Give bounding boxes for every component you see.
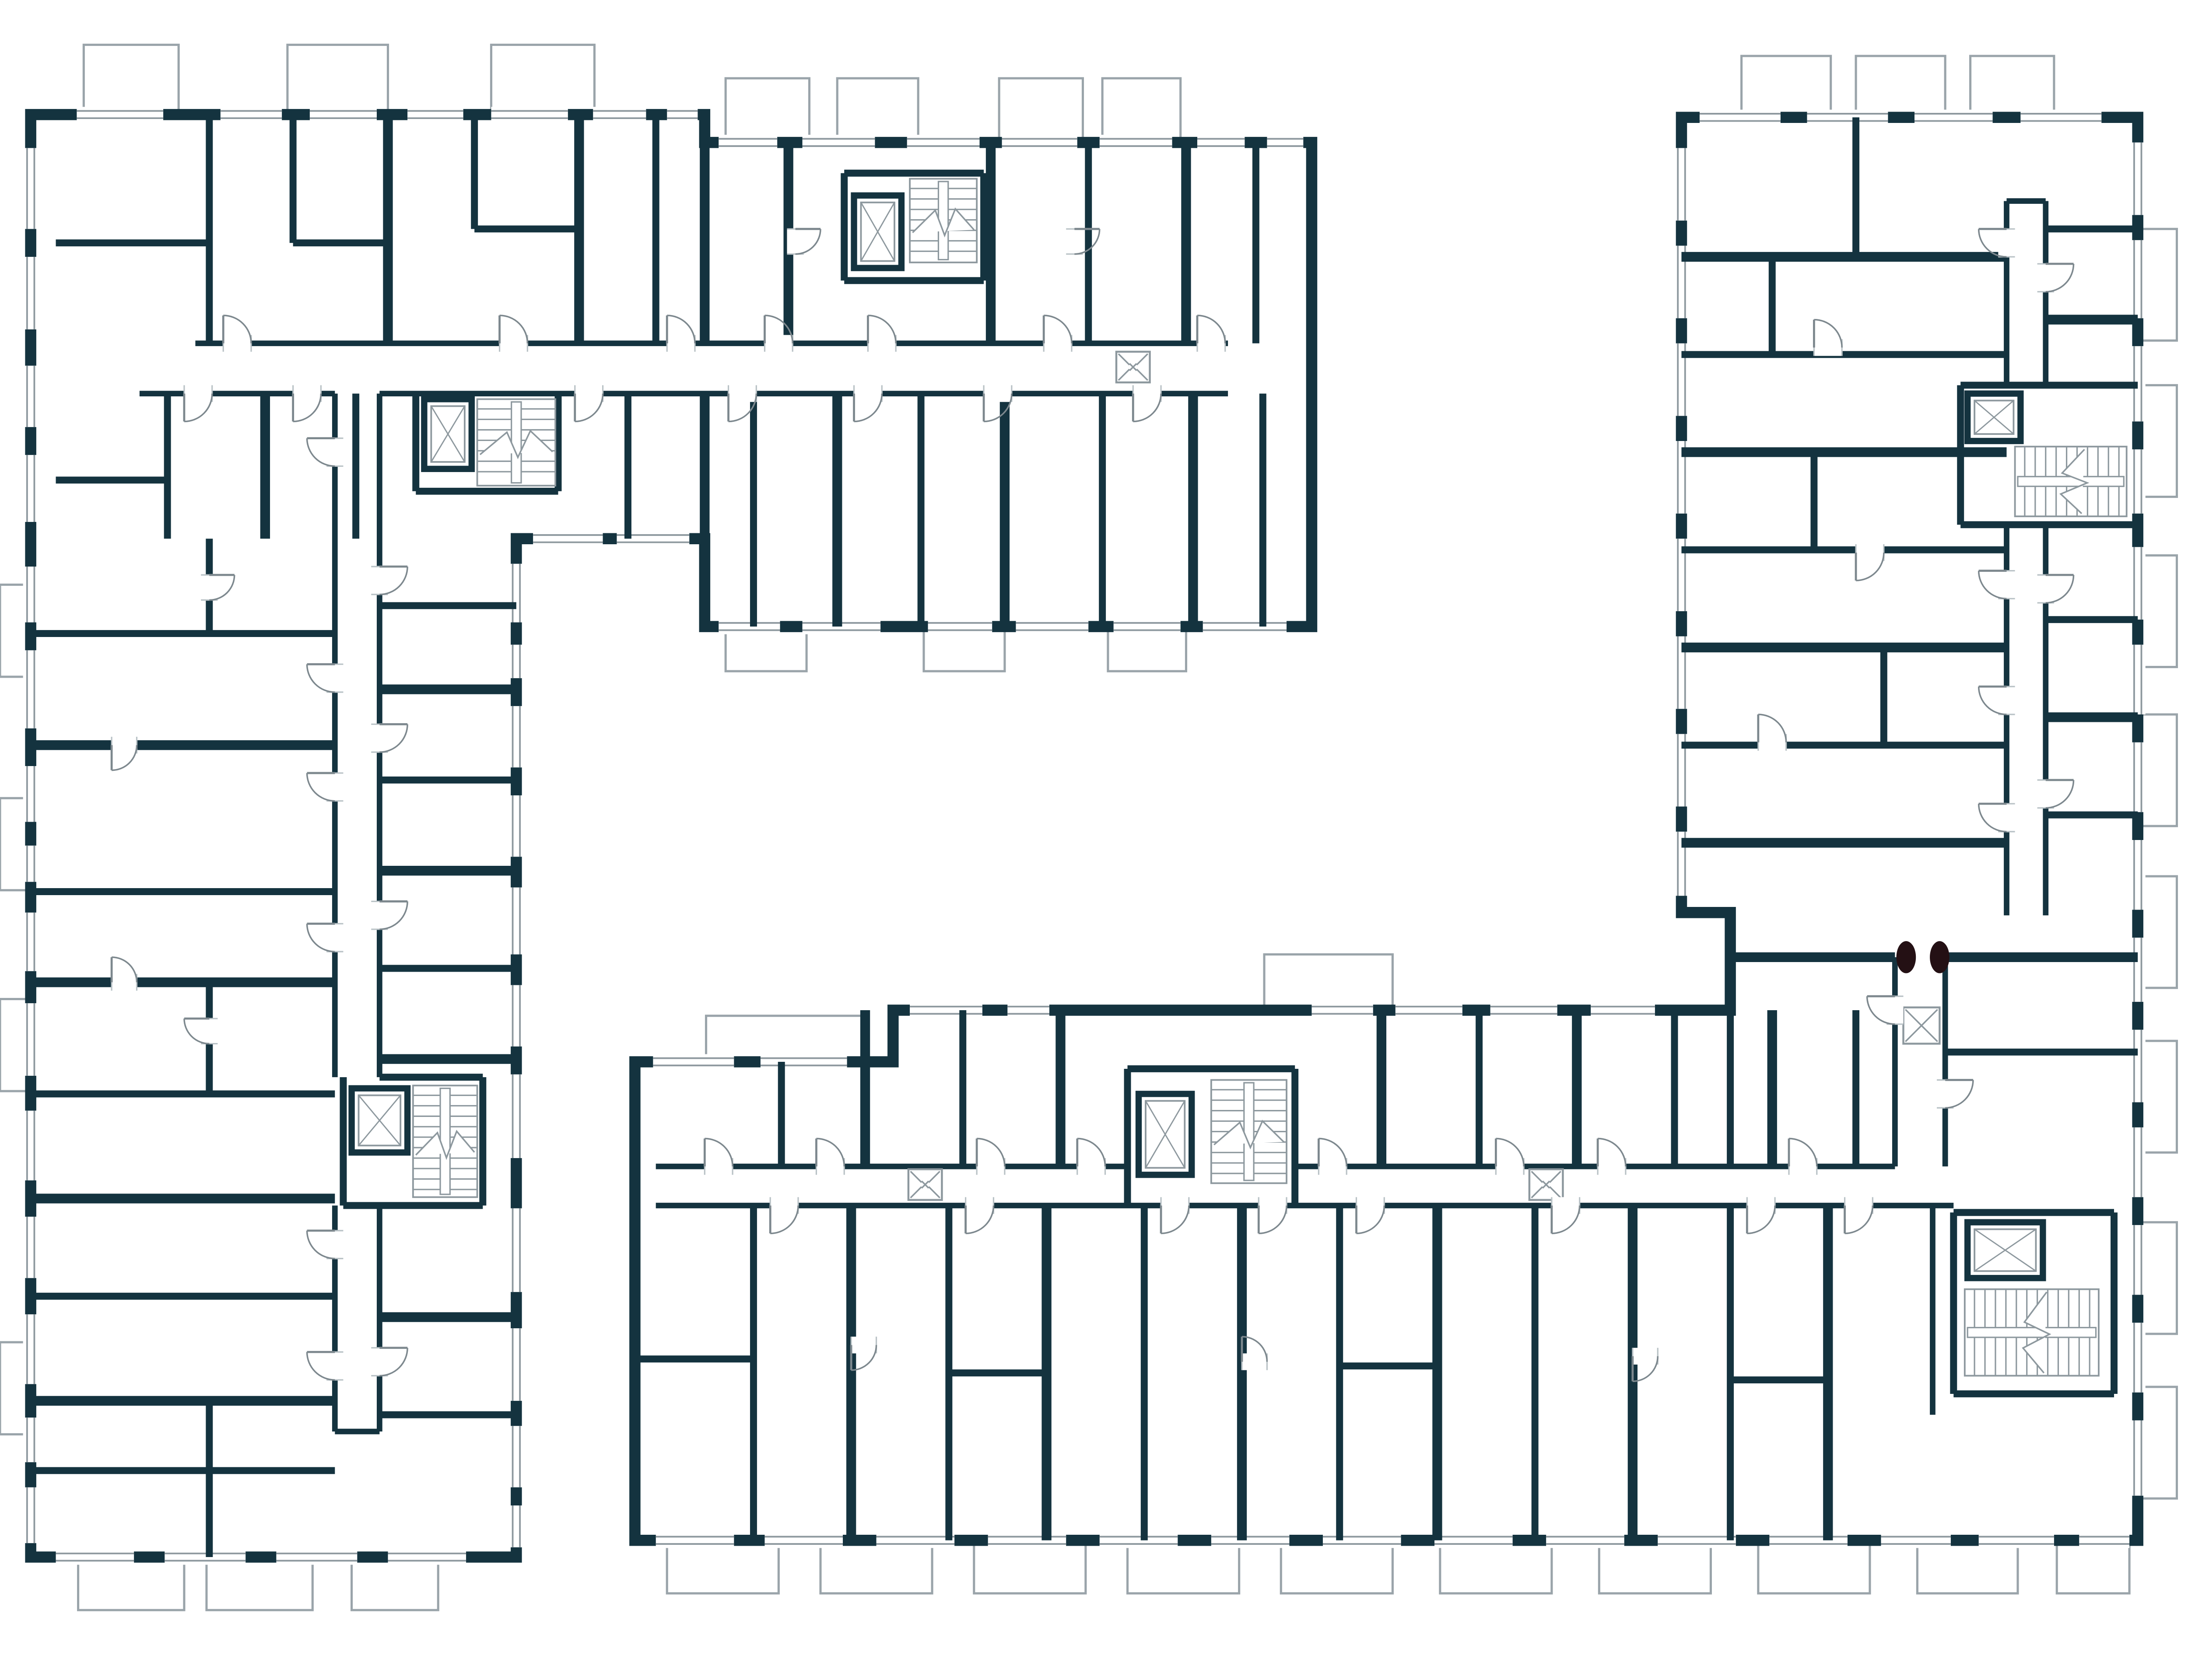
window xyxy=(1323,1533,1401,1548)
window xyxy=(2130,1323,2146,1392)
window xyxy=(1700,110,1781,125)
window xyxy=(23,1487,39,1543)
window xyxy=(2130,449,2146,514)
balcony xyxy=(352,1557,438,1610)
window xyxy=(2130,547,2146,619)
window xyxy=(23,1417,39,1462)
window xyxy=(508,564,524,623)
window xyxy=(988,1533,1066,1548)
window xyxy=(1267,135,1303,150)
window xyxy=(23,650,39,728)
window xyxy=(764,1533,843,1548)
shaft-hatch-marker xyxy=(1529,1169,1563,1200)
balcony xyxy=(2057,1540,2129,1593)
balcony xyxy=(1742,56,1831,117)
balcony xyxy=(974,1540,1086,1593)
elevator xyxy=(424,399,471,469)
window xyxy=(276,1549,357,1564)
balcony xyxy=(820,1540,932,1593)
window xyxy=(1914,110,1993,125)
balcony xyxy=(84,45,179,114)
floor-plan xyxy=(0,0,2188,1680)
balcony xyxy=(1102,78,1181,143)
window xyxy=(1100,135,1172,150)
balcony xyxy=(837,78,918,143)
window xyxy=(23,1111,39,1180)
shaft-hatch-marker xyxy=(1903,1008,1939,1044)
window xyxy=(1658,1533,1736,1548)
window xyxy=(593,107,646,122)
floor-plan-canvas xyxy=(0,0,2188,1680)
window xyxy=(667,107,698,122)
window xyxy=(2130,143,2146,215)
window xyxy=(23,455,39,522)
window xyxy=(23,913,39,971)
balcony xyxy=(1758,1540,1870,1593)
window xyxy=(1546,1533,1624,1548)
window xyxy=(2020,110,2101,125)
window xyxy=(2130,742,2146,812)
window xyxy=(23,846,39,882)
window xyxy=(56,1549,134,1564)
staircase xyxy=(910,179,977,262)
window xyxy=(2079,1533,2129,1548)
elevator xyxy=(1967,1222,2043,1278)
window xyxy=(1100,1533,1178,1548)
elevator xyxy=(352,1088,408,1153)
window xyxy=(508,795,524,857)
staircase xyxy=(2015,447,2127,516)
window xyxy=(2130,938,2146,1002)
window xyxy=(907,135,980,150)
window xyxy=(877,1533,955,1548)
balcony xyxy=(1917,1540,2018,1593)
window xyxy=(508,1328,524,1401)
window xyxy=(653,1054,734,1069)
window xyxy=(508,1426,524,1487)
window xyxy=(1211,1533,1290,1548)
window xyxy=(1591,1002,1655,1018)
window xyxy=(1490,1002,1557,1018)
window xyxy=(1114,619,1181,634)
window xyxy=(23,1217,39,1278)
window xyxy=(23,1003,39,1076)
window xyxy=(508,985,524,1046)
elevator xyxy=(1967,394,2020,441)
balcony xyxy=(78,1557,184,1610)
window xyxy=(1311,1002,1373,1018)
elevator xyxy=(1139,1094,1192,1175)
window xyxy=(719,619,780,634)
window xyxy=(491,107,568,122)
window xyxy=(719,135,777,150)
window xyxy=(23,257,39,329)
staircase xyxy=(413,1085,477,1197)
window xyxy=(1769,1533,1848,1548)
window xyxy=(1007,1002,1049,1018)
window xyxy=(2130,1225,2146,1295)
window xyxy=(1197,135,1245,150)
balcony xyxy=(491,45,594,114)
balcony xyxy=(1440,1540,1552,1593)
window xyxy=(1674,148,1689,220)
balcony xyxy=(1971,56,2054,117)
window xyxy=(221,107,282,122)
window xyxy=(23,366,39,427)
window xyxy=(1807,110,1888,125)
window xyxy=(2130,1421,2146,1496)
window xyxy=(2130,1127,2146,1197)
window xyxy=(1203,619,1287,634)
window xyxy=(23,1314,39,1384)
balcony xyxy=(999,78,1083,143)
window xyxy=(1002,135,1077,150)
window xyxy=(23,766,39,822)
window xyxy=(165,1549,245,1564)
window xyxy=(1016,619,1088,634)
balcony xyxy=(726,78,809,143)
window xyxy=(310,107,377,122)
window xyxy=(508,1505,524,1547)
window xyxy=(23,567,39,623)
window xyxy=(1396,1002,1462,1018)
balcony xyxy=(207,1557,312,1610)
entry-oval-marker xyxy=(1897,941,1916,973)
window xyxy=(77,107,163,122)
window xyxy=(2130,840,2146,910)
buildings-layer xyxy=(31,115,2138,1557)
window xyxy=(2130,645,2146,714)
window xyxy=(1979,1533,2054,1548)
staircase xyxy=(1965,1289,2099,1376)
staircase xyxy=(1211,1080,1287,1183)
balcony xyxy=(667,1540,778,1593)
balcony xyxy=(288,45,388,114)
window xyxy=(1434,1533,1513,1548)
shaft-hatch-marker xyxy=(908,1169,942,1200)
window xyxy=(656,1533,734,1548)
window xyxy=(23,148,39,229)
window xyxy=(1881,1533,1950,1548)
elevator xyxy=(854,196,901,268)
balcony xyxy=(1264,954,1392,1010)
window xyxy=(928,619,992,634)
window xyxy=(2130,240,2146,318)
entry-oval-marker xyxy=(1930,941,1950,973)
window xyxy=(508,887,524,954)
window xyxy=(761,1054,847,1069)
window xyxy=(508,1208,524,1292)
window xyxy=(2130,1030,2146,1102)
window xyxy=(407,107,463,122)
balcony xyxy=(1599,1540,1711,1593)
balcony xyxy=(1281,1540,1392,1593)
window xyxy=(533,531,603,546)
window xyxy=(388,1549,466,1564)
shaft-hatch-marker xyxy=(1116,352,1150,382)
window xyxy=(508,645,524,679)
window xyxy=(508,706,524,767)
balcony xyxy=(1856,56,1945,117)
balcony xyxy=(1128,1540,1239,1593)
window xyxy=(508,1074,524,1158)
window xyxy=(910,1002,982,1018)
window xyxy=(803,135,875,150)
staircase xyxy=(477,399,556,486)
